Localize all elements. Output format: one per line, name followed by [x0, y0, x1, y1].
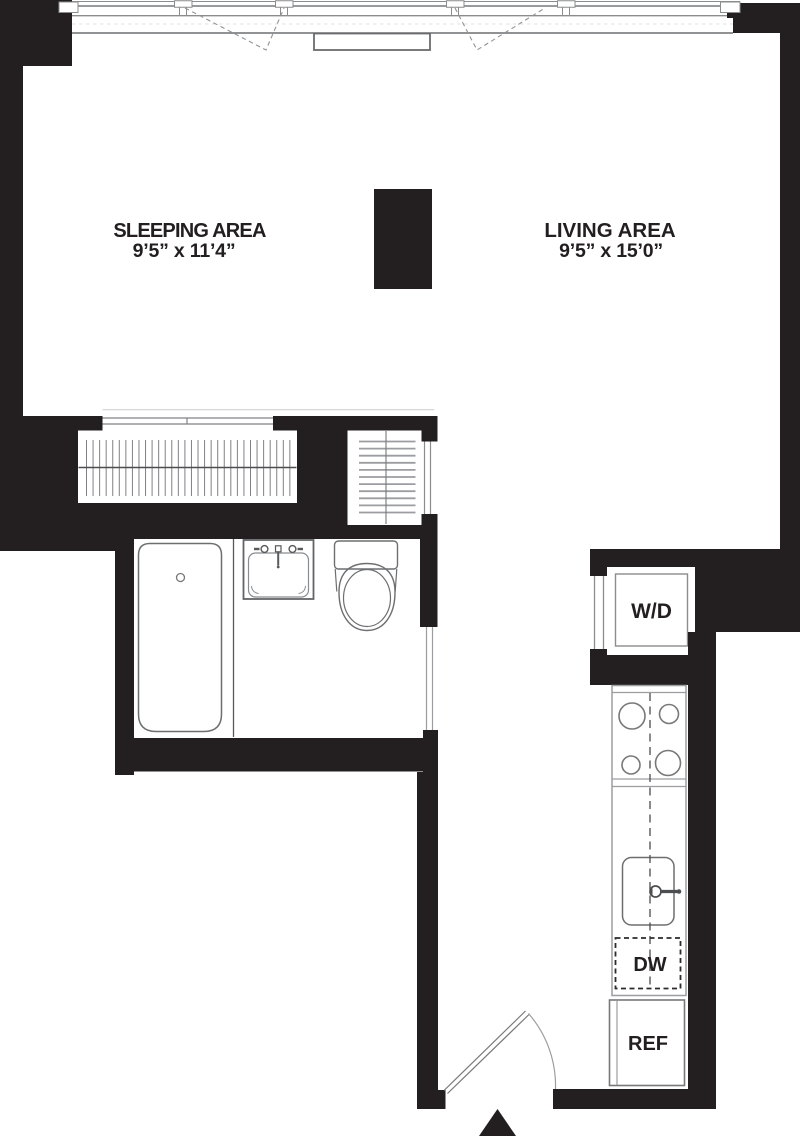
svg-text:9’5” x 15’0”: 9’5” x 15’0”: [559, 240, 663, 262]
svg-text:9’5” x 11’4”: 9’5” x 11’4”: [133, 240, 236, 262]
svg-text:SLEEPING AREA: SLEEPING AREA: [113, 220, 266, 242]
svg-text:W/D: W/D: [631, 600, 672, 623]
svg-text:LIVING AREA: LIVING AREA: [544, 219, 676, 242]
svg-text:REF: REF: [628, 1033, 668, 1055]
svg-text:DW: DW: [633, 954, 666, 976]
